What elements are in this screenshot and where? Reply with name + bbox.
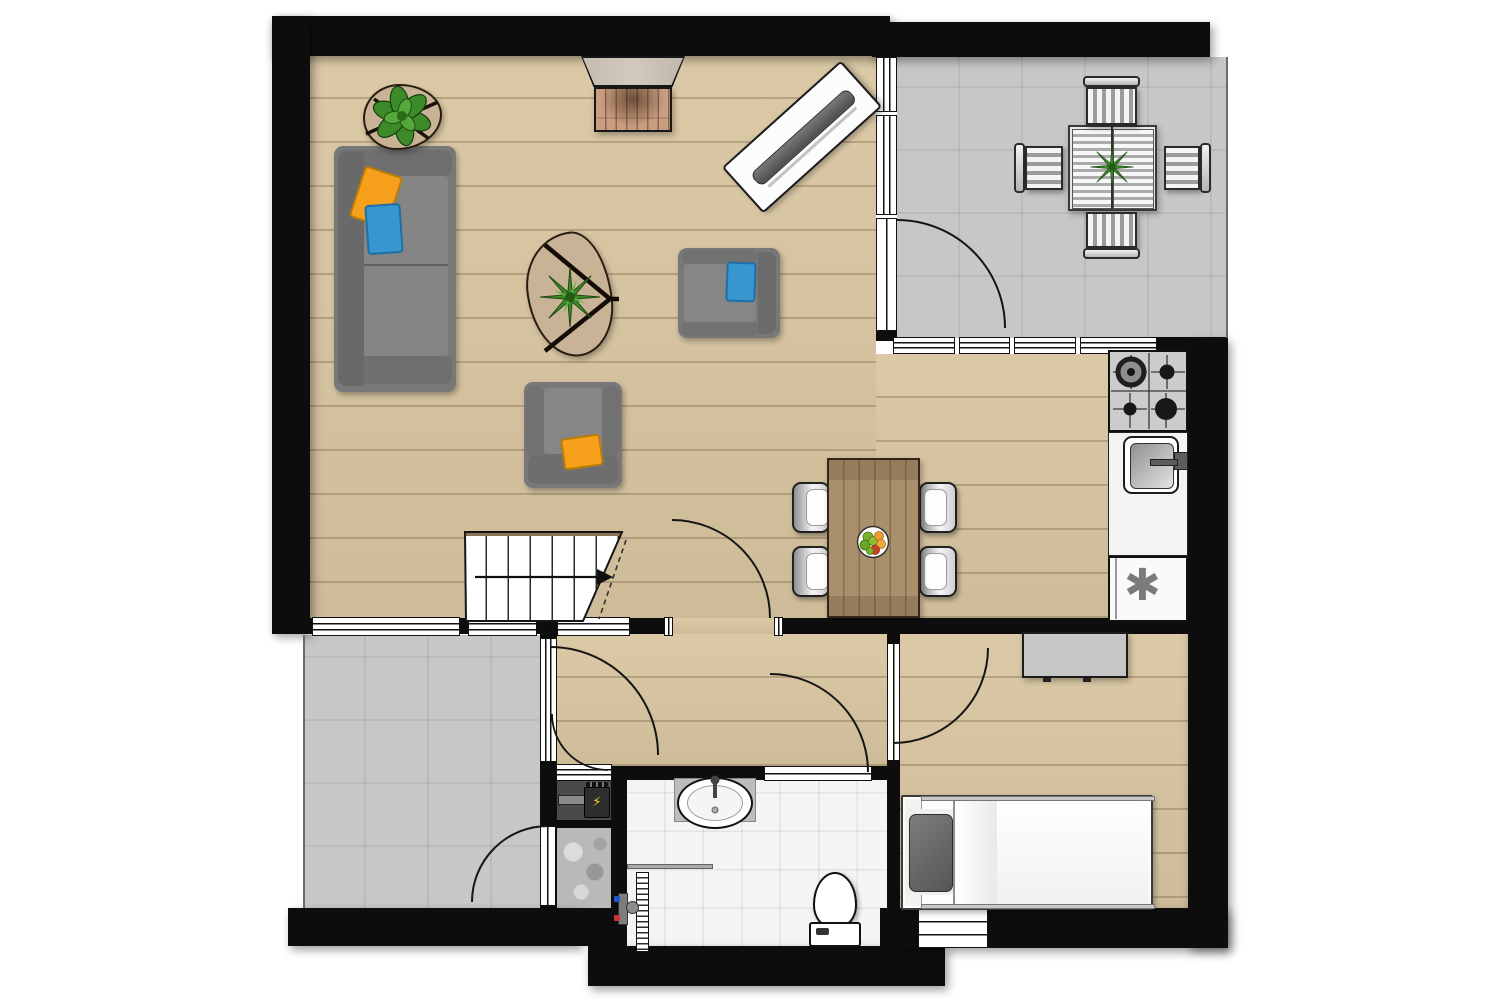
sink-faucet-spout xyxy=(1150,459,1178,466)
bed-sheet-fold xyxy=(953,800,999,905)
door-frame-terrace-top[interactable] xyxy=(876,218,897,331)
window-terrace-bottom-3 xyxy=(1014,337,1076,354)
wall-right xyxy=(1188,338,1228,948)
freezer-star-icon: ✱ xyxy=(1124,564,1161,608)
armchair-orange-armrest-right xyxy=(602,386,620,456)
freezer: ✱ xyxy=(1108,556,1188,622)
freezer-door-line xyxy=(1115,558,1117,619)
boiler-bolt-icon: ⚡ xyxy=(592,795,601,810)
window-utility-niche xyxy=(556,764,612,781)
terrace-top-open-edge xyxy=(1226,57,1228,338)
outdoor-chair-top xyxy=(1086,87,1137,125)
boiler-pipe xyxy=(558,795,585,805)
armchair-orange-armrest-left xyxy=(526,386,544,456)
outdoor-table-leaf-left xyxy=(1072,129,1113,209)
window-living-terrace-1 xyxy=(312,617,460,636)
terrace-top-floor xyxy=(897,57,1227,338)
window-terrace-left-2 xyxy=(876,115,897,215)
outdoor-chair-top-back xyxy=(1083,76,1140,87)
door-jamb-left xyxy=(664,617,673,636)
outdoor-table-leaf-right xyxy=(1113,129,1154,209)
toilet-bowl xyxy=(813,872,857,928)
bed-pillow xyxy=(909,814,953,892)
fireplace-hearth xyxy=(594,87,672,132)
armchair-orange xyxy=(524,382,622,488)
outdoor-chair-bottom xyxy=(1086,212,1137,248)
door-frame-storage-terrace[interactable] xyxy=(540,826,556,906)
armchair-blue xyxy=(678,248,780,338)
sink-basin xyxy=(1130,443,1174,489)
sofa-pillow-blue xyxy=(364,203,403,255)
armchair-blue-pillow xyxy=(725,261,756,302)
door-frame-bedroom[interactable] xyxy=(887,643,900,761)
shower-cold-indicator xyxy=(614,915,620,921)
single-bed xyxy=(901,795,1153,910)
boiler-knobs xyxy=(586,782,608,787)
window-terrace-bottom-2 xyxy=(959,337,1010,354)
shower-partition xyxy=(627,864,713,869)
shower-drain xyxy=(636,872,649,952)
storage-room-floor xyxy=(557,828,611,908)
outdoor-chair-right-back xyxy=(1200,143,1211,193)
bed-rail-top xyxy=(921,796,1155,801)
gas-hob xyxy=(1108,350,1188,432)
desk xyxy=(1022,632,1128,678)
bed-rail-bottom xyxy=(921,904,1155,909)
dining-chair xyxy=(919,546,957,597)
wall-top-terrace xyxy=(872,22,1210,57)
terrace-bottom-floor xyxy=(303,635,540,908)
dining-table-end-top xyxy=(829,460,918,480)
floor-plan-canvas: ✱ ⚡ xyxy=(0,0,1500,999)
door-frame-hall-terrace[interactable] xyxy=(540,638,557,762)
window-bedroom-bottom xyxy=(918,908,988,948)
dining-table xyxy=(827,458,920,618)
washbasin-inner xyxy=(687,785,743,821)
window-terrace-bottom-1 xyxy=(893,337,955,354)
armchair-orange-pillow xyxy=(560,433,604,470)
wall-bottom-left xyxy=(288,908,580,946)
dining-chair xyxy=(919,482,957,533)
fireplace-mantle xyxy=(583,58,683,85)
hallway-floor xyxy=(557,634,887,766)
wall-left xyxy=(272,16,310,633)
dining-table-end-bottom xyxy=(829,596,918,616)
armchair-blue-armrest-bottom xyxy=(682,322,758,336)
terrace-bottom-open-edge xyxy=(303,635,305,908)
wall-top xyxy=(272,16,890,56)
shower-head xyxy=(626,901,639,914)
sofa xyxy=(334,146,456,392)
desk-foot-left xyxy=(1043,678,1051,682)
toilet-flush-button xyxy=(816,928,829,935)
dining-chair xyxy=(792,482,830,533)
outdoor-chair-left xyxy=(1025,146,1063,190)
wall-step-bath-bed xyxy=(880,908,900,986)
washbasin xyxy=(677,777,753,829)
bed-duvet xyxy=(997,800,1149,905)
dining-chair xyxy=(792,546,830,597)
outdoor-table xyxy=(1068,125,1157,211)
outdoor-chair-right xyxy=(1164,146,1200,190)
desk-foot-right xyxy=(1083,678,1091,682)
outdoor-chair-bottom-back xyxy=(1083,248,1140,259)
door-frame-bathroom[interactable] xyxy=(764,766,872,781)
toilet-tank xyxy=(809,922,861,947)
outdoor-chair-left-back xyxy=(1014,143,1025,193)
boiler-unit: ⚡ xyxy=(584,787,610,818)
sofa-seat-divider xyxy=(364,264,448,266)
door-jamb-right xyxy=(774,617,783,636)
outdoor-table-center-line xyxy=(1111,127,1113,209)
fireplace-mantle-border xyxy=(581,56,685,87)
wall-storage-bottom xyxy=(540,908,627,946)
shower-hot-indicator xyxy=(614,896,620,902)
armchair-blue-back xyxy=(758,252,776,334)
door-opening-floor xyxy=(668,618,778,634)
